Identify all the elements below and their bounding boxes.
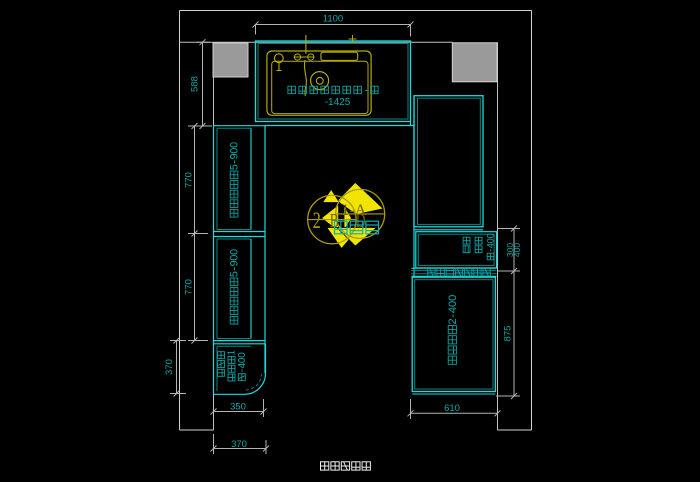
- svg-text:370: 370: [164, 359, 175, 375]
- svg-text:588: 588: [190, 76, 201, 92]
- svg-text:0: 0: [447, 295, 459, 301]
- svg-text:-: -: [237, 369, 248, 372]
- svg-text:5: 5: [228, 271, 240, 277]
- svg-text:1100: 1100: [323, 14, 343, 25]
- svg-text:-1425: -1425: [325, 97, 351, 108]
- svg-text:875: 875: [503, 326, 514, 342]
- svg-text:370: 370: [231, 439, 247, 450]
- svg-text:0: 0: [228, 142, 240, 148]
- svg-text:0: 0: [485, 233, 495, 238]
- svg-text:0: 0: [237, 352, 248, 358]
- svg-text:770: 770: [184, 279, 195, 295]
- svg-text:2: 2: [447, 318, 459, 324]
- svg-text:350: 350: [230, 402, 246, 413]
- svg-text:2: 2: [313, 208, 321, 233]
- svg-text:-: -: [364, 84, 368, 96]
- svg-text:610: 610: [444, 403, 460, 414]
- svg-text:0: 0: [228, 249, 240, 255]
- svg-text:400: 400: [512, 243, 522, 257]
- svg-text:5: 5: [228, 164, 240, 170]
- svg-text:-: -: [447, 314, 459, 318]
- svg-text:770: 770: [184, 172, 195, 188]
